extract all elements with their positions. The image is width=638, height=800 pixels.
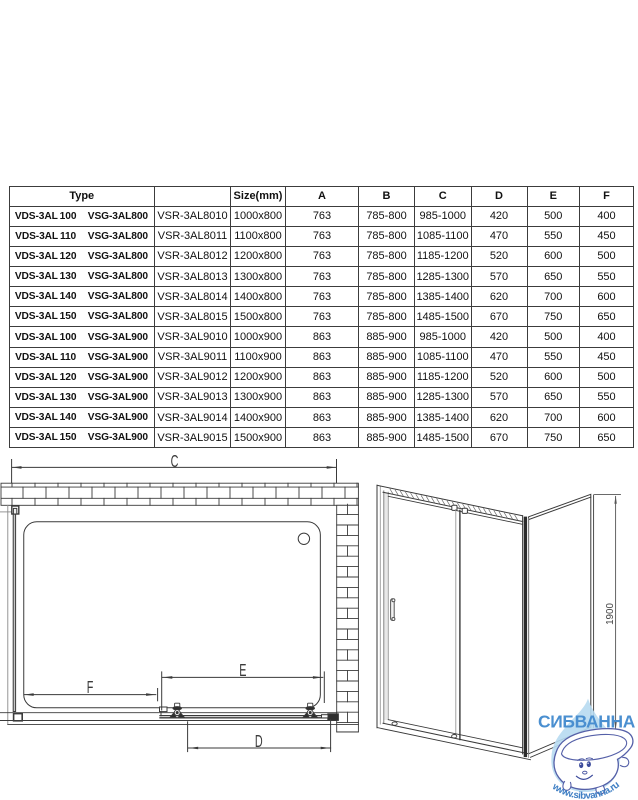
svg-text:F: F [87, 678, 94, 697]
svg-text:E: E [239, 662, 246, 681]
svg-text:1900: 1900 [605, 603, 616, 625]
svg-text:C: C [171, 452, 179, 471]
svg-text:СИБВАННА: СИБВАННА [538, 712, 636, 732]
svg-text:D: D [255, 732, 263, 751]
